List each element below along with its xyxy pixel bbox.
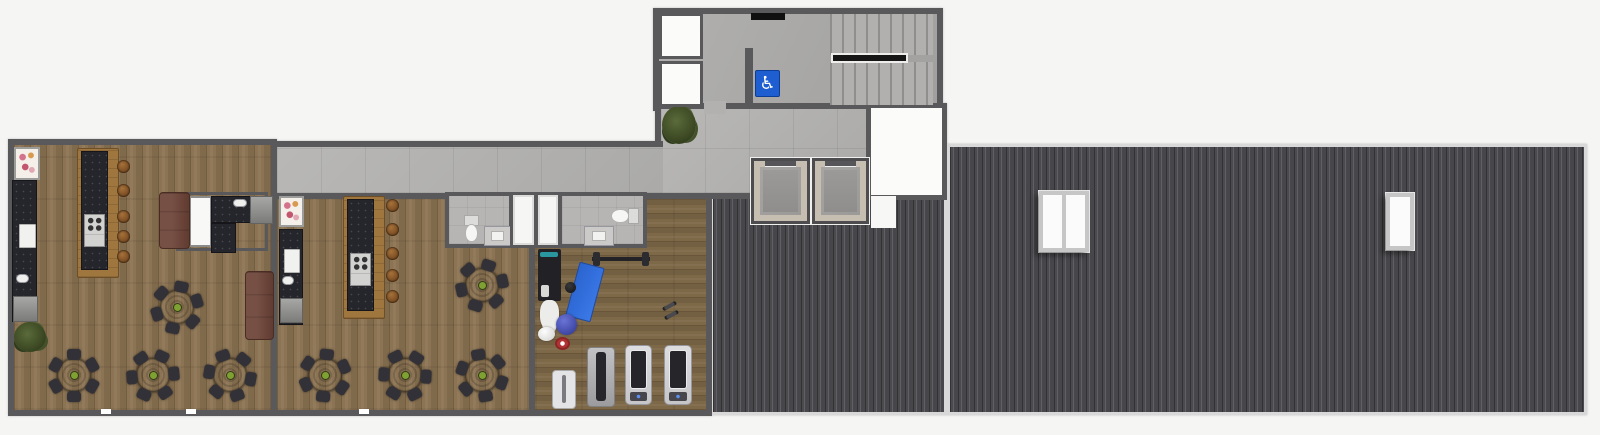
kitchen-sink [16, 274, 29, 283]
chair [420, 369, 432, 384]
roof-low-section [710, 196, 947, 415]
dining-table [458, 261, 506, 309]
potted-plant [14, 322, 46, 352]
cabinet [13, 296, 38, 322]
chair [478, 389, 494, 402]
chair [378, 367, 390, 382]
floor-plan: ♿ [0, 0, 1600, 435]
elevator [812, 158, 869, 224]
chair [319, 348, 334, 360]
dining-table [458, 351, 506, 399]
door-opening [704, 101, 726, 114]
ab-wheel [555, 337, 570, 350]
utility-room [866, 103, 947, 200]
skylight [1039, 191, 1089, 252]
cabinet [280, 298, 303, 323]
roof-main-section [947, 144, 1587, 415]
chair [173, 280, 189, 294]
window-marker [359, 409, 369, 414]
storage-room [659, 13, 703, 59]
dining-table [381, 351, 429, 399]
treadmill [664, 345, 692, 405]
wall-vent [751, 13, 785, 20]
skylight [1386, 193, 1414, 250]
elevator [751, 158, 810, 224]
potted-plant [662, 106, 696, 144]
exercise-ball [538, 327, 555, 341]
barbell-rack [592, 250, 650, 268]
sofa [159, 192, 190, 249]
dining-table [129, 351, 177, 399]
chair [471, 348, 487, 361]
stair-rail [831, 53, 908, 63]
toilet [610, 206, 639, 224]
bar-stool [386, 199, 399, 212]
rowing-machine [552, 370, 576, 409]
bar-stool [117, 230, 130, 243]
chair [126, 369, 138, 384]
bar-stool [386, 247, 399, 260]
bath-vanity [584, 226, 614, 246]
flower-shelf [279, 196, 304, 227]
dining-table [206, 351, 254, 399]
fridge [284, 249, 300, 273]
window-marker [186, 409, 196, 414]
centerpiece [149, 371, 158, 380]
bath-sink [233, 199, 247, 207]
island-countertop [81, 151, 108, 270]
bath-vanity [484, 226, 511, 246]
bath-counter [211, 223, 236, 253]
treadmill [625, 345, 652, 405]
lobby-wall [745, 48, 753, 106]
fridge [19, 224, 36, 248]
exercise-ball [556, 314, 577, 335]
sofa [245, 271, 274, 340]
kitchen-sink [282, 276, 294, 285]
chair [67, 349, 81, 360]
dumbbells [662, 301, 680, 323]
stair-flight-upper [830, 14, 933, 55]
shower-closet [189, 196, 212, 247]
accessible-sign: ♿ [756, 71, 779, 96]
centerpiece [70, 371, 79, 380]
centerpiece [321, 371, 330, 380]
centerpiece [478, 281, 487, 290]
bath-counter [211, 196, 253, 223]
cabinet [250, 196, 273, 224]
bar-stool [117, 160, 130, 173]
bar-stool [386, 290, 399, 303]
roof-notch [871, 196, 896, 228]
chair [168, 366, 180, 381]
stair-flight-lower [830, 62, 933, 105]
kettlebell [565, 282, 576, 293]
centerpiece [173, 303, 182, 312]
centerpiece [401, 371, 410, 380]
bar-stool [117, 250, 130, 263]
bar-stool [386, 223, 399, 236]
bar-stool [117, 184, 130, 197]
flower-shelf [14, 147, 40, 180]
chair [316, 390, 331, 402]
weight-station [538, 249, 561, 301]
chair [67, 391, 81, 402]
bar-stool [386, 269, 399, 282]
chair [244, 371, 257, 387]
centerpiece [226, 371, 235, 380]
centerpiece [478, 371, 487, 380]
stove [84, 214, 105, 247]
dining-table [301, 351, 349, 399]
corridor [271, 141, 663, 199]
window-marker [101, 409, 111, 414]
toilet [462, 215, 479, 243]
stove [350, 253, 371, 286]
dining-table [50, 351, 98, 399]
weight-bench [587, 347, 615, 407]
dining-table [153, 283, 201, 331]
storage-room [659, 61, 703, 107]
bar-stool [117, 210, 130, 223]
shower-stall [510, 192, 537, 248]
